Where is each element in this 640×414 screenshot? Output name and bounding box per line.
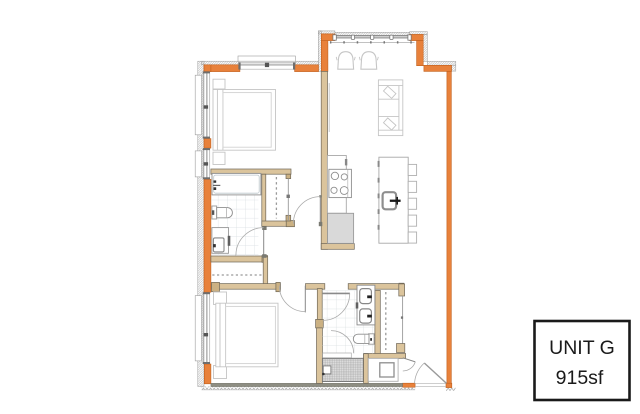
svg-text:915sf: 915sf xyxy=(556,367,604,389)
svg-text:UNIT G: UNIT G xyxy=(549,337,615,359)
